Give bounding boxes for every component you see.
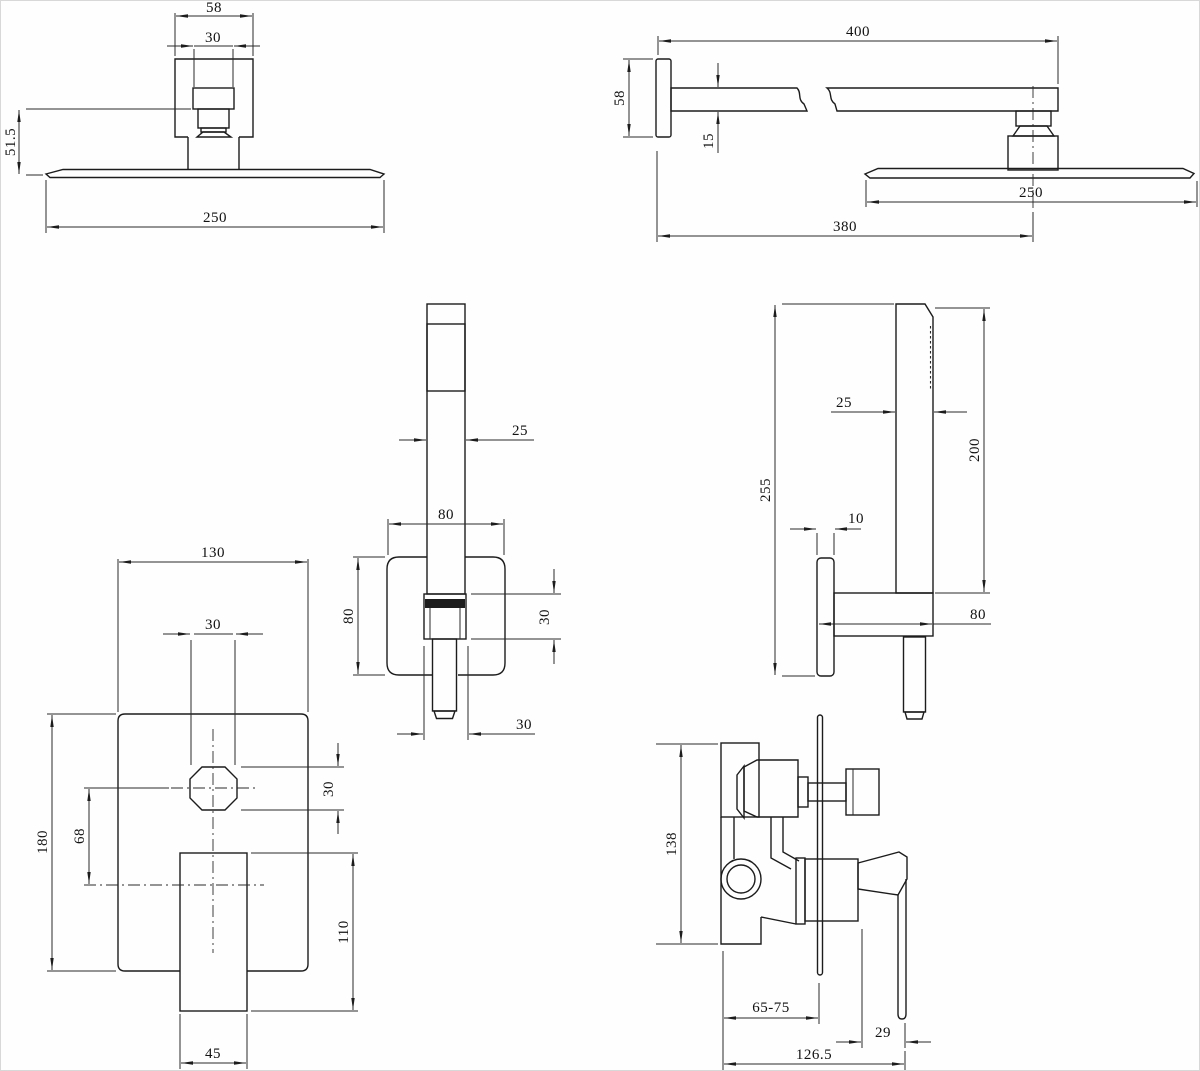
ball-joint-side bbox=[1013, 126, 1054, 136]
diverter-knurl-ring bbox=[798, 777, 808, 807]
dim-bracket-width: 58 bbox=[175, 1, 253, 56]
dim-spout-to-handle: 68 bbox=[72, 788, 169, 884]
view-mixer-front: 130 30 180 68 30 bbox=[35, 545, 358, 1069]
shower-head-plate-front bbox=[46, 170, 384, 178]
threaded-stem-side bbox=[904, 637, 926, 712]
dim-label-handle-depth: 25 bbox=[836, 395, 852, 411]
dim-label-install-depth: 65-75 bbox=[752, 1000, 790, 1016]
dim-label-overall-depth: 126.5 bbox=[796, 1047, 832, 1063]
view-hand-shower-side: 255 25 200 10 80 bbox=[758, 304, 991, 719]
dim-label-handle-width: 25 bbox=[512, 423, 528, 439]
diverter-down-stem bbox=[771, 817, 799, 869]
dim-label-handle-width-front: 45 bbox=[205, 1046, 221, 1062]
dim-label-head-diameter-side: 250 bbox=[1019, 185, 1043, 201]
dim-label-wall-to-head-center: 380 bbox=[833, 219, 857, 235]
dim-spout-width: 30 bbox=[163, 617, 263, 765]
view-hand-shower-front: 25 80 80 30 30 bbox=[341, 304, 561, 740]
threaded-stem-front bbox=[433, 639, 457, 711]
dim-spout-height: 30 bbox=[241, 743, 344, 834]
holder-wall-plate-side bbox=[817, 558, 834, 676]
holder-plate-front bbox=[387, 557, 505, 675]
arm-wall-plate bbox=[656, 59, 671, 137]
connector-inner-lines bbox=[430, 608, 460, 639]
dim-label-connector-width: 30 bbox=[205, 30, 221, 46]
dim-handle-width-front: 45 bbox=[180, 1014, 247, 1069]
connector-upper-block bbox=[193, 88, 234, 109]
dim-label-handle-length-front: 110 bbox=[336, 920, 352, 943]
mixer-body-upper bbox=[721, 743, 759, 817]
dim-label-connector-height: 30 bbox=[537, 609, 553, 625]
diverter-body bbox=[744, 760, 798, 817]
dim-handle-offset: 29 bbox=[836, 929, 931, 1048]
dim-head-diameter-front: 250 bbox=[46, 180, 384, 233]
trim-plate-edge bbox=[818, 715, 823, 975]
dim-label-head-diameter-front: 250 bbox=[203, 210, 227, 226]
dim-head-drop: 51.5 bbox=[3, 109, 191, 175]
dim-overall-depth: 126.5 bbox=[724, 1047, 905, 1070]
dim-label-handle-length: 200 bbox=[967, 438, 983, 462]
mixer-handle-front bbox=[180, 853, 247, 1011]
dim-body-height: 138 bbox=[656, 744, 718, 944]
connector-mid-block bbox=[198, 109, 229, 128]
connector-seal-band bbox=[425, 599, 465, 608]
wall-bracket-outline bbox=[175, 59, 253, 137]
dim-plate-thickness: 10 bbox=[790, 511, 864, 555]
dim-label-holder-height: 80 bbox=[341, 608, 357, 624]
dim-label-connector-width-bottom: 30 bbox=[516, 717, 532, 733]
dim-label-holder-depth: 80 bbox=[970, 607, 986, 623]
dim-label-plate-height: 180 bbox=[35, 830, 51, 854]
technical-drawing-sheet: 58 30 51.5 250 bbox=[0, 0, 1200, 1071]
view-mixer-side: 138 65-75 29 126.5 bbox=[656, 715, 931, 1070]
dim-handle-width: 25 bbox=[399, 423, 534, 440]
dim-wall-plate-height: 58 bbox=[612, 59, 653, 137]
dim-label-bracket-width: 58 bbox=[206, 1, 222, 16]
dim-handle-length: 200 bbox=[935, 308, 990, 593]
dim-holder-width: 80 bbox=[388, 507, 504, 555]
mixer-handle-cap bbox=[858, 852, 907, 895]
dim-label-arm-thickness: 15 bbox=[701, 133, 717, 149]
dim-holder-depth: 80 bbox=[819, 607, 991, 624]
dim-head-diameter-side: 250 bbox=[866, 180, 1197, 207]
hand-shower-handle-side bbox=[896, 304, 933, 593]
shower-arm-left-segment bbox=[671, 88, 807, 111]
threaded-stem-tip-side bbox=[905, 712, 924, 719]
handle-knurled-grip bbox=[427, 324, 465, 391]
cartridge-flange bbox=[796, 858, 805, 924]
dim-wall-to-head-center: 380 bbox=[657, 151, 1033, 242]
spout-hole-octagon bbox=[190, 767, 237, 810]
dim-label-handle-offset: 29 bbox=[875, 1025, 891, 1041]
shower-set-technical-drawing: 58 30 51.5 250 bbox=[1, 1, 1200, 1071]
head-neck bbox=[188, 137, 239, 169]
mixer-handle-lever bbox=[898, 879, 906, 1019]
threaded-stem-tip-front bbox=[434, 711, 455, 719]
dim-label-arm-length: 400 bbox=[846, 24, 870, 40]
hand-shower-handle bbox=[427, 304, 465, 594]
dim-connector-width-bottom: 30 bbox=[397, 646, 535, 740]
dim-label-body-height: 138 bbox=[664, 832, 680, 856]
cartridge-body bbox=[805, 859, 858, 921]
dim-arm-thickness: 15 bbox=[701, 63, 718, 153]
dim-label-head-drop: 51.5 bbox=[3, 128, 19, 156]
dim-label-spout-width: 30 bbox=[205, 617, 221, 633]
dim-label-overall-height: 255 bbox=[758, 478, 774, 502]
view-shower-arm-side: 400 58 15 250 380 bbox=[612, 24, 1197, 242]
dim-holder-height: 80 bbox=[341, 557, 385, 675]
dim-label-plate-width: 130 bbox=[201, 545, 225, 561]
ball-joint-bell bbox=[197, 132, 231, 137]
holder-bracket-side bbox=[834, 593, 933, 636]
dim-connector-height: 30 bbox=[471, 569, 561, 664]
dim-label-holder-width: 80 bbox=[438, 507, 454, 523]
dim-label-spout-to-handle: 68 bbox=[72, 828, 88, 844]
dim-label-spout-height: 30 bbox=[321, 781, 337, 797]
dim-label-plate-thickness: 10 bbox=[848, 511, 864, 527]
dim-handle-length-front: 110 bbox=[251, 853, 358, 1011]
dim-overall-height: 255 bbox=[758, 304, 894, 676]
dim-label-wall-plate-height: 58 bbox=[612, 90, 628, 106]
diverter-cap bbox=[737, 766, 744, 818]
shower-arm-right-segment bbox=[827, 88, 1058, 111]
view-shower-head-front: 58 30 51.5 250 bbox=[3, 1, 384, 233]
body-cartridge-joint bbox=[761, 917, 796, 924]
dim-handle-depth: 25 bbox=[831, 395, 967, 412]
inlet-port-inner bbox=[727, 865, 755, 893]
diverter-shaft bbox=[808, 783, 846, 801]
arm-connector-nut bbox=[1016, 111, 1051, 126]
mixer-body-lower bbox=[721, 899, 761, 944]
diverter-knob bbox=[846, 769, 879, 815]
